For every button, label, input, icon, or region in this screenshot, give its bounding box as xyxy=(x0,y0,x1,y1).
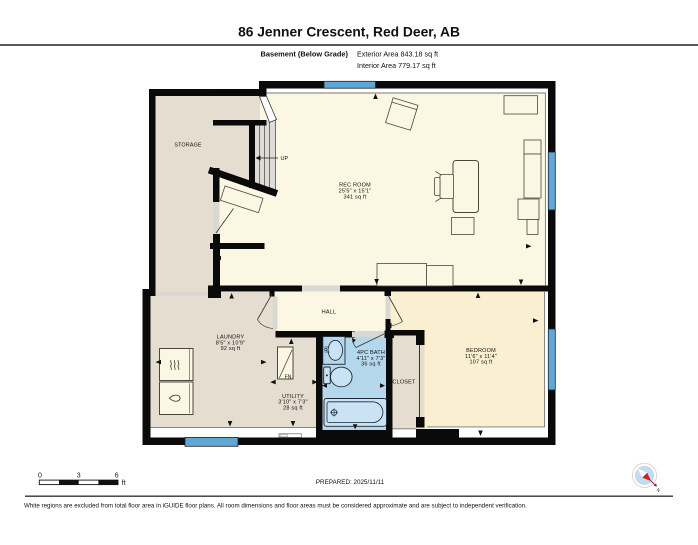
svg-text:341 sq ft: 341 sq ft xyxy=(344,195,367,201)
svg-text:92 sq ft: 92 sq ft xyxy=(221,346,241,352)
svg-text:UP: UP xyxy=(281,156,289,162)
svg-text:HALL: HALL xyxy=(322,310,337,316)
svg-text:86 Jenner Crescent, Red Deer,: 86 Jenner Crescent, Red Deer, AB xyxy=(238,25,460,40)
svg-text:Basement (Below Grade): Basement (Below Grade) xyxy=(261,49,349,58)
svg-text:PREPARED: 2025/11/11: PREPARED: 2025/11/11 xyxy=(316,479,385,486)
svg-text:FN: FN xyxy=(285,374,292,380)
svg-text:107 sq ft: 107 sq ft xyxy=(470,360,493,366)
svg-text:3: 3 xyxy=(77,473,81,480)
svg-text:White regions are excluded fro: White regions are excluded from total fl… xyxy=(24,502,527,509)
svg-text:6: 6 xyxy=(115,473,119,480)
svg-text:STORAGE: STORAGE xyxy=(174,143,202,149)
svg-text:CLOSET: CLOSET xyxy=(392,380,416,386)
svg-text:28 sq ft: 28 sq ft xyxy=(283,405,303,411)
svg-text:Exterior Area 843.18 sq ft: Exterior Area 843.18 sq ft xyxy=(357,49,438,58)
svg-text:36 sq ft: 36 sq ft xyxy=(361,361,381,367)
svg-text:ft: ft xyxy=(122,480,126,487)
svg-text:0: 0 xyxy=(38,473,42,480)
svg-text:Interior Area 779.17 sq ft: Interior Area 779.17 sq ft xyxy=(357,61,436,70)
